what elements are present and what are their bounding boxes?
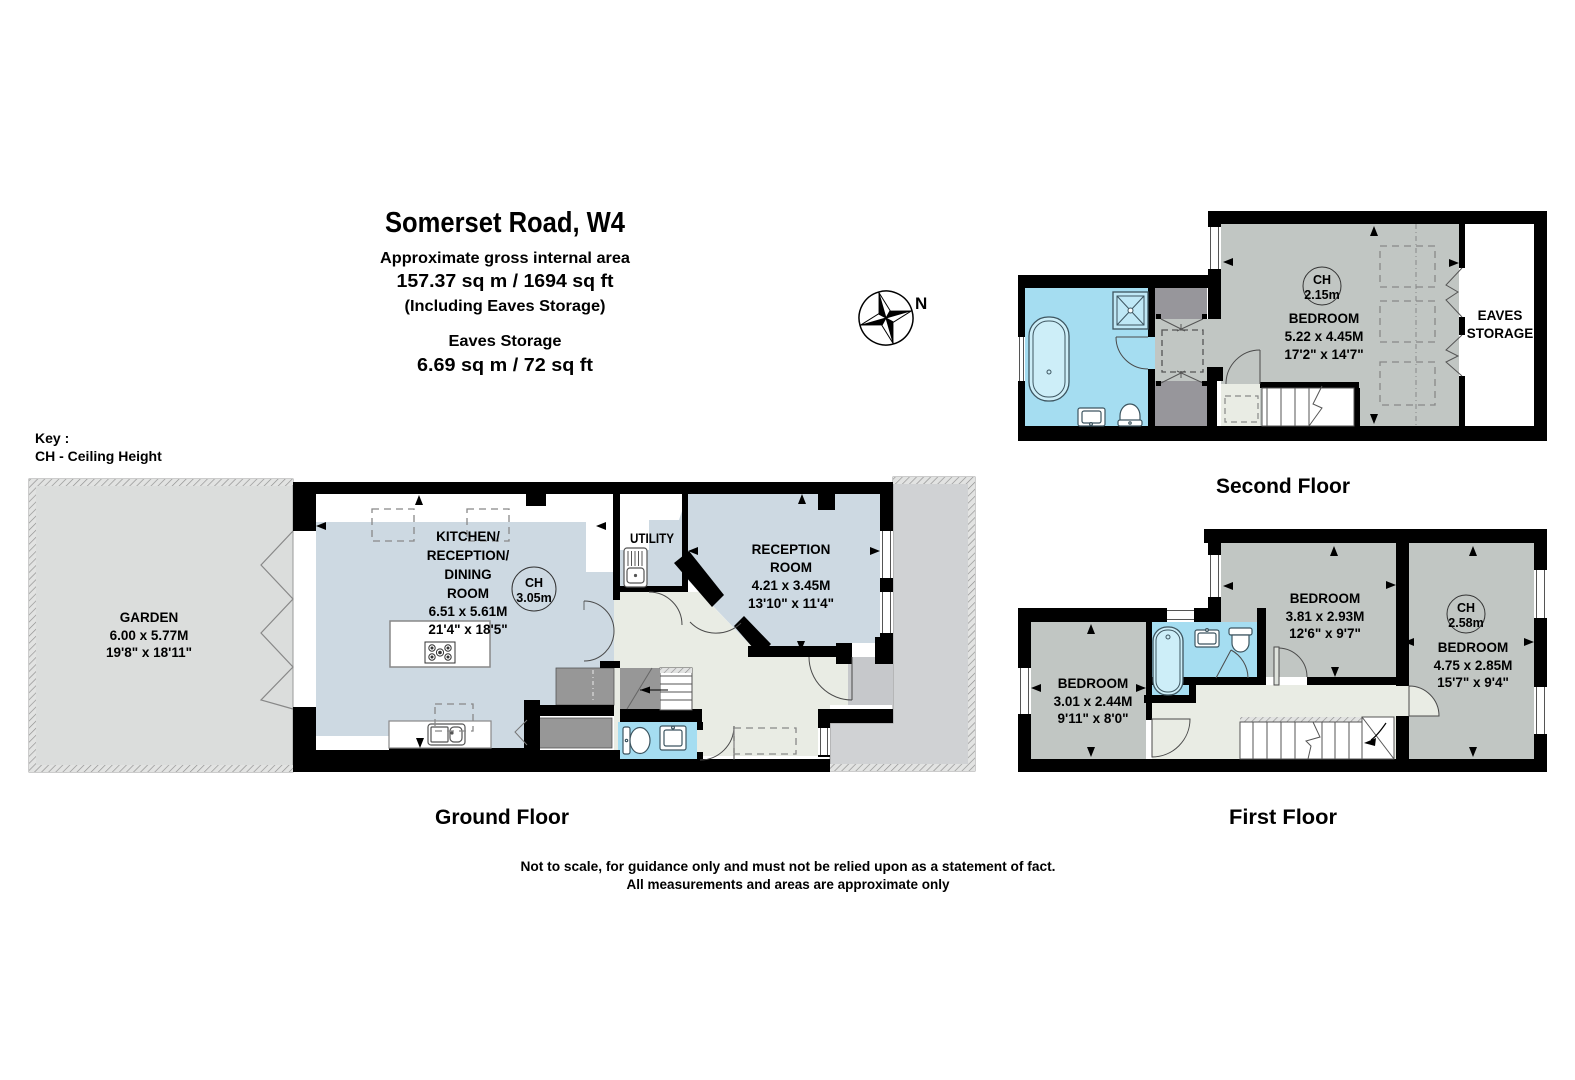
svg-text:EAVES: EAVES <box>1478 308 1523 323</box>
svg-text:Eaves Storage: Eaves Storage <box>449 333 562 350</box>
svg-text:BEDROOM: BEDROOM <box>1058 676 1129 691</box>
svg-text:15'7" x 9'4": 15'7" x 9'4" <box>1437 675 1509 690</box>
svg-text:DINING: DINING <box>444 567 491 582</box>
svg-text:4.75 x 2.85M: 4.75 x 2.85M <box>1434 658 1513 673</box>
svg-text:First Floor: First Floor <box>1229 806 1337 829</box>
svg-text:21'4" x 18'5": 21'4" x 18'5" <box>428 622 507 637</box>
svg-text:4.21 x 3.45M: 4.21 x 3.45M <box>752 578 831 593</box>
svg-text:All measurements and areas are: All measurements and areas are approxima… <box>627 877 950 892</box>
svg-text:CH: CH <box>1313 273 1331 287</box>
svg-text:Somerset Road, W4: Somerset Road, W4 <box>385 207 625 239</box>
svg-text:Not to scale, for guidance onl: Not to scale, for guidance only and must… <box>521 859 1056 874</box>
svg-text:CH: CH <box>1457 601 1475 615</box>
svg-text:RECEPTION/: RECEPTION/ <box>427 548 510 563</box>
svg-text:KITCHEN/: KITCHEN/ <box>436 529 500 544</box>
svg-text:3.05m: 3.05m <box>516 591 551 605</box>
svg-text:Ground Floor: Ground Floor <box>435 806 569 829</box>
svg-text:BEDROOM: BEDROOM <box>1289 311 1360 326</box>
svg-text:BEDROOM: BEDROOM <box>1438 640 1509 655</box>
svg-text:ROOM: ROOM <box>447 586 489 601</box>
svg-text:STORAGE: STORAGE <box>1467 326 1534 341</box>
svg-text:12'6" x 9'7": 12'6" x 9'7" <box>1289 626 1361 641</box>
svg-text:3.01 x 2.44M: 3.01 x 2.44M <box>1054 694 1133 709</box>
svg-text:CH - Ceiling Height: CH - Ceiling Height <box>35 448 162 464</box>
svg-text:13'10" x 11'4": 13'10" x 11'4" <box>748 596 834 611</box>
svg-text:Second Floor: Second Floor <box>1216 475 1350 498</box>
svg-text:9'11" x 8'0": 9'11" x 8'0" <box>1057 711 1128 726</box>
svg-text:6.69 sq m / 72 sq ft: 6.69 sq m / 72 sq ft <box>417 355 593 375</box>
svg-text:BEDROOM: BEDROOM <box>1290 591 1361 606</box>
svg-text:19'8" x 18'11": 19'8" x 18'11" <box>106 645 192 660</box>
svg-text:Key :: Key : <box>35 430 69 446</box>
svg-text:(Including Eaves Storage): (Including Eaves Storage) <box>405 298 606 315</box>
svg-text:2.58m: 2.58m <box>1448 616 1483 630</box>
svg-text:6.51 x 5.61M: 6.51 x 5.61M <box>429 604 508 619</box>
svg-text:GARDEN: GARDEN <box>120 610 179 625</box>
svg-text:5.22 x 4.45M: 5.22 x 4.45M <box>1285 329 1364 344</box>
svg-text:CH: CH <box>525 576 543 590</box>
svg-text:3.81 x 2.93M: 3.81 x 2.93M <box>1286 609 1365 624</box>
svg-text:2.15m: 2.15m <box>1304 288 1339 302</box>
svg-text:UTILITY: UTILITY <box>630 531 674 546</box>
svg-text:6.00 x 5.77M: 6.00 x 5.77M <box>110 628 189 643</box>
svg-text:RECEPTION: RECEPTION <box>752 542 831 557</box>
svg-text:Approximate gross internal are: Approximate gross internal area <box>380 250 630 267</box>
svg-text:N: N <box>915 294 927 313</box>
svg-text:17'2" x 14'7": 17'2" x 14'7" <box>1284 347 1363 362</box>
svg-text:ROOM: ROOM <box>770 560 812 575</box>
svg-text:157.37 sq m / 1694 sq ft: 157.37 sq m / 1694 sq ft <box>397 271 614 291</box>
